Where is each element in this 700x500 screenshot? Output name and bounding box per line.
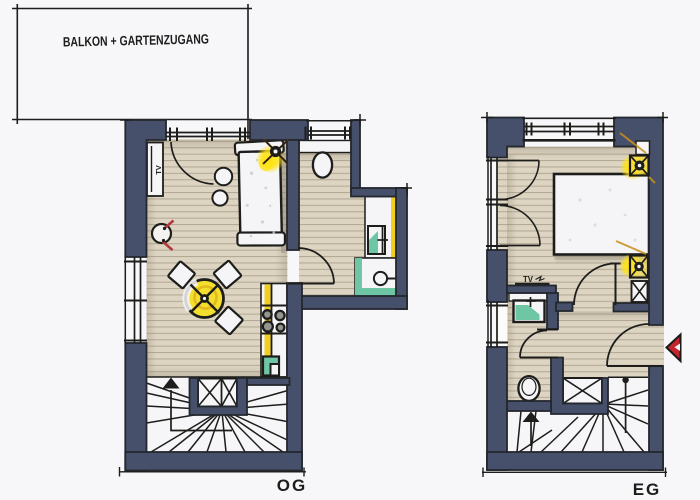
svg-text:TV: TV [523,275,534,284]
svg-text:EG: EG [633,480,662,499]
svg-text:OG: OG [277,476,307,495]
svg-text:BALKON + GARTENZUGANG: BALKON + GARTENZUGANG [63,31,209,49]
svg-text:TV: TV [154,165,163,175]
